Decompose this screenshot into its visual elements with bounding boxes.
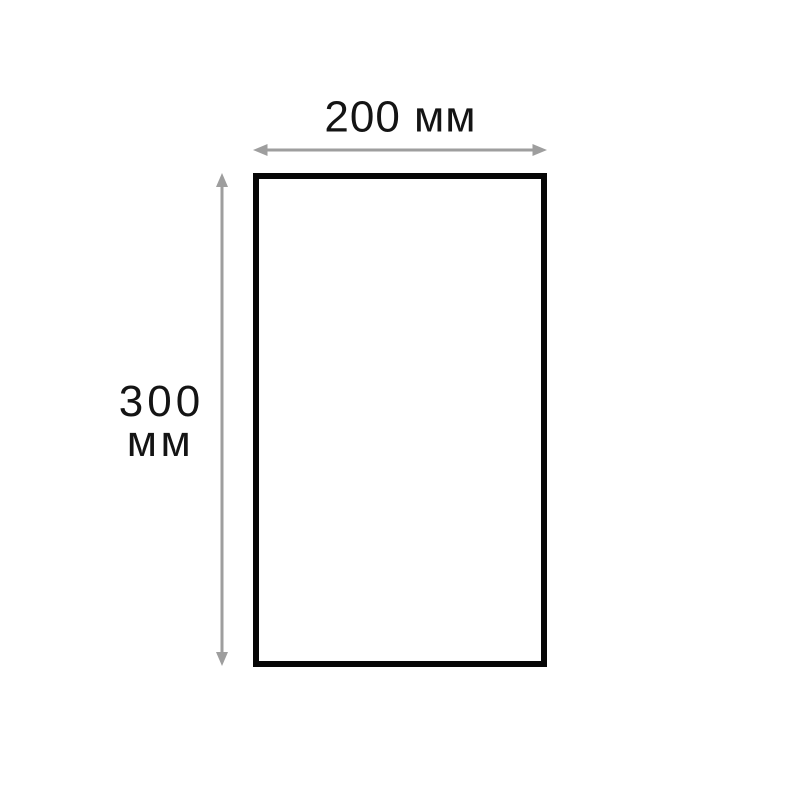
svg-text:200 мм: 200 мм — [324, 93, 476, 142]
svg-text:мм: мм — [127, 417, 195, 466]
